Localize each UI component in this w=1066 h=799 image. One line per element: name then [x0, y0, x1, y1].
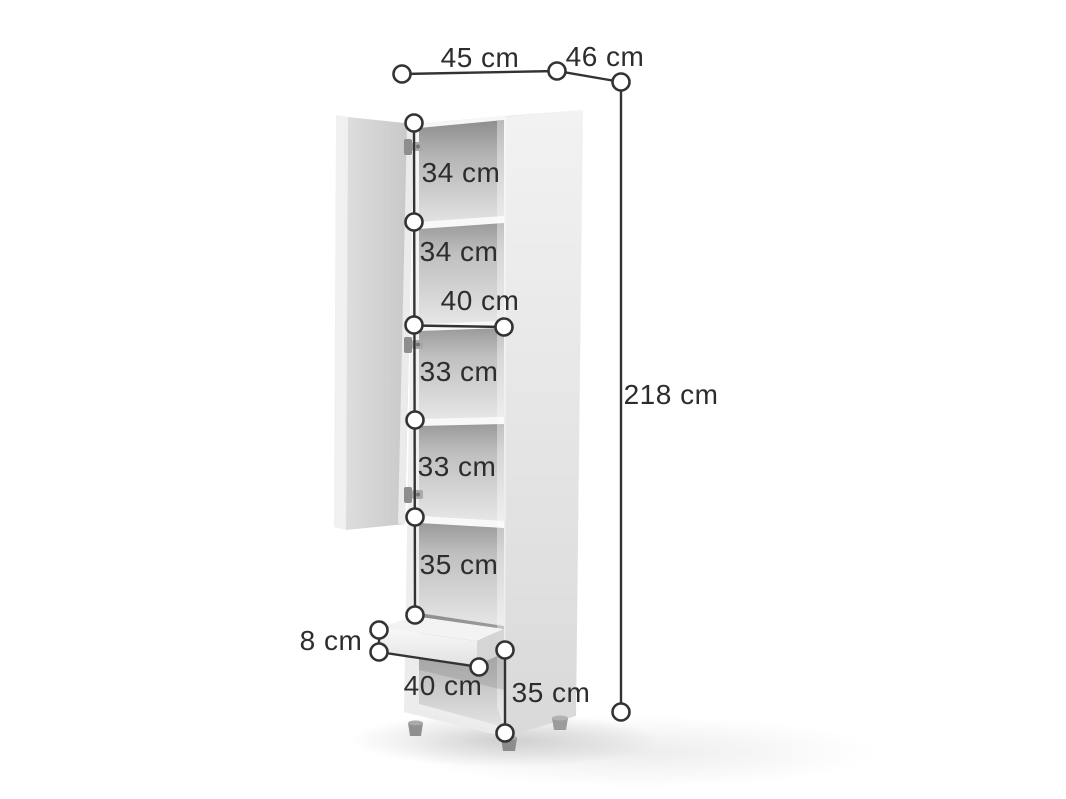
dim-label-compartment-5: 35 cm [420, 551, 499, 579]
dimension-line-inner-width [415, 326, 504, 328]
furniture-dimension-diagram: 45 cm 46 cm 218 cm 34 cm 34 cm 40 cm 33 … [0, 0, 1066, 799]
door-edge-highlight-left [334, 115, 348, 530]
dim-label-compartment-4: 33 cm [418, 453, 497, 481]
dim-label-total-height: 218 cm [624, 381, 719, 409]
cabinet-foot-back-right [552, 716, 568, 731]
dim-label-compartment-2: 34 cm [420, 238, 499, 266]
dim-label-drawer-height: 8 cm [300, 627, 363, 655]
dim-label-top-depth: 46 cm [566, 43, 645, 71]
floor-shadow [350, 713, 875, 788]
cabinet-foot-front-left [408, 721, 423, 737]
dim-label-bottom-width: 40 cm [404, 672, 483, 700]
cabinet-side-panel [505, 110, 583, 737]
dim-label-bottom-height: 35 cm [512, 679, 591, 707]
dim-label-top-width: 45 cm [441, 44, 520, 72]
dim-label-inner-width: 40 cm [441, 287, 520, 315]
dimension-line-shelf-chain [414, 123, 415, 615]
dim-label-compartment-3: 33 cm [420, 358, 499, 386]
open-door [334, 115, 414, 530]
dim-label-compartment-1: 34 cm [422, 159, 501, 187]
